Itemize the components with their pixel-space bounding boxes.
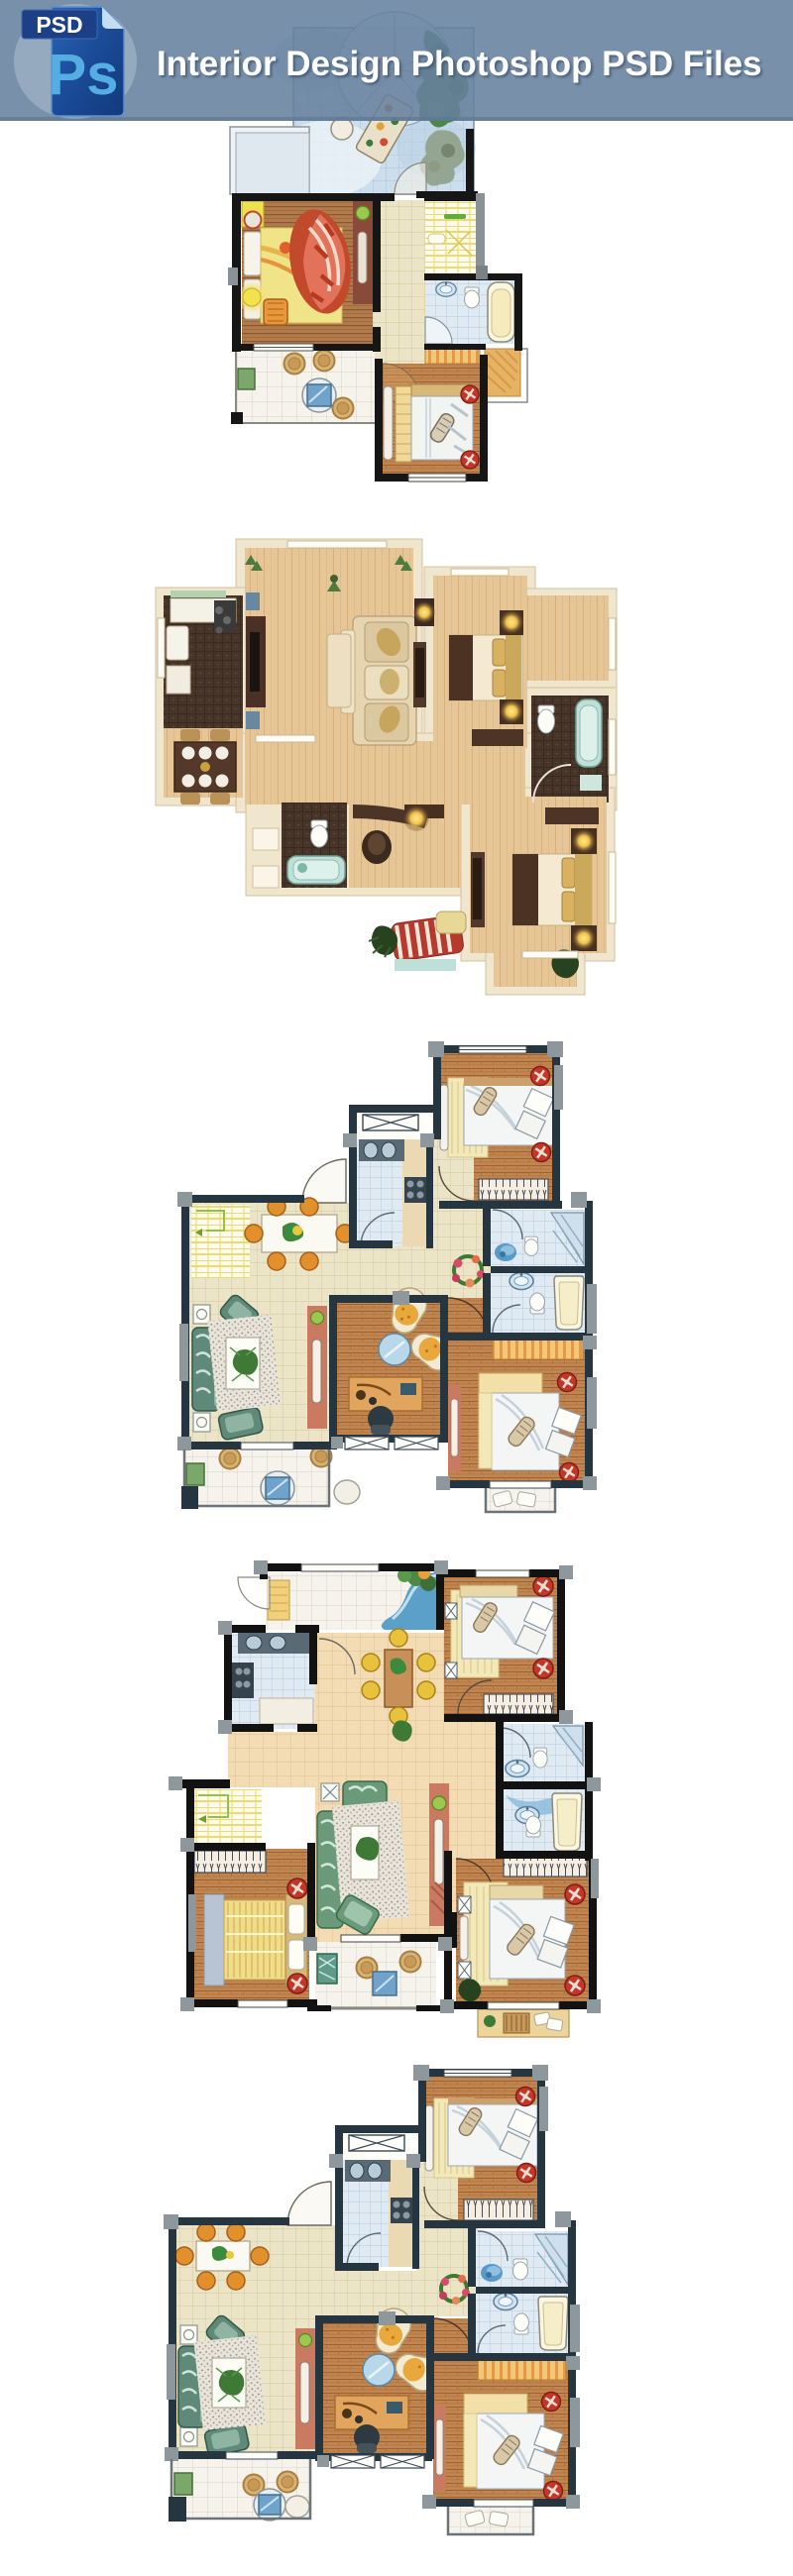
- svg-text:PSD: PSD: [36, 12, 82, 38]
- svg-text:Interior Design Photoshop PSD: Interior Design Photoshop PSD Files: [157, 45, 762, 83]
- svg-text:Ps: Ps: [49, 43, 119, 107]
